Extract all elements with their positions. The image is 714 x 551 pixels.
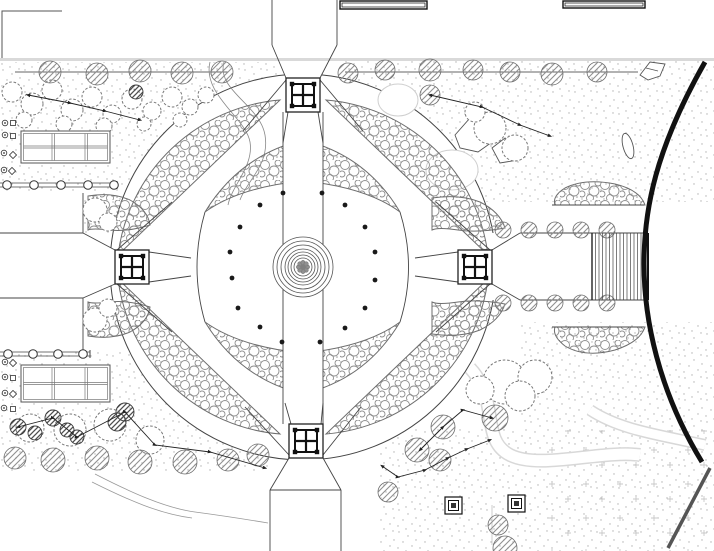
tree-symbol — [39, 61, 61, 83]
tree-symbol — [419, 59, 441, 81]
square-symbol — [11, 376, 16, 381]
plaza-planting-dot — [228, 250, 233, 255]
top-edge-structure — [563, 1, 645, 8]
plaza-planting-dot — [258, 203, 263, 208]
pavilion-column — [462, 276, 466, 280]
square-symbol — [11, 407, 16, 412]
shrub-bed-east-lower — [432, 301, 505, 335]
tree-symbol — [173, 450, 197, 474]
plaza-planting-dot — [373, 250, 378, 255]
pavilion-column — [119, 254, 123, 258]
top-edge-structure — [340, 1, 427, 9]
square-symbol — [11, 134, 16, 139]
pavilion-column — [293, 428, 297, 432]
tree-symbol — [521, 295, 537, 311]
fountain-layer — [273, 237, 333, 297]
pavilion-column — [119, 276, 123, 280]
tree-symbol — [495, 295, 511, 311]
tree-symbol — [375, 60, 395, 80]
tree-symbol — [429, 449, 451, 471]
plaza-planting-dot — [230, 276, 235, 281]
plaza-planting-dot — [343, 326, 348, 331]
shrub-cloud — [137, 117, 151, 131]
garden-pavilion — [286, 78, 320, 112]
tree-symbol — [599, 295, 615, 311]
tree-symbol — [86, 63, 108, 85]
tree-symbol — [217, 449, 239, 471]
plaza-planting-dot — [280, 340, 285, 345]
colonnade-post — [79, 350, 88, 359]
tree-symbol — [171, 62, 193, 84]
tree-symbol — [128, 450, 152, 474]
shrub-cloud — [173, 113, 187, 127]
shrub-cloud — [99, 213, 117, 231]
plaza-planting-dot — [281, 191, 286, 196]
site-plan-drawing — [0, 0, 714, 551]
tree-symbol — [495, 222, 511, 238]
pavilion-column — [462, 254, 466, 258]
shrub-cloud — [82, 87, 102, 107]
landscape-plan-canvas — [0, 0, 714, 551]
pavilion-column — [312, 104, 316, 108]
shrub-cloud — [198, 87, 214, 103]
tree-symbol — [599, 222, 615, 238]
shrub-cloud — [56, 116, 72, 132]
tree-symbol — [547, 295, 563, 311]
pavilion-column — [484, 276, 488, 280]
tree-symbol — [488, 515, 508, 535]
tree-symbol — [547, 222, 563, 238]
tree-symbol — [482, 405, 508, 431]
shrub-cloud — [466, 376, 494, 404]
dark-tree-symbol — [129, 85, 143, 99]
square-planter — [508, 495, 525, 512]
plaza-planting-dot — [236, 306, 241, 311]
plaza-planting-dot — [258, 325, 263, 330]
plaza-planting-dot — [238, 225, 243, 230]
tree-symbol — [211, 61, 233, 83]
site-wall-band — [0, 58, 714, 61]
tree-symbol — [405, 438, 429, 462]
plaza-planting-dot — [363, 306, 368, 311]
square-symbol — [11, 121, 16, 126]
tree-symbol — [4, 447, 26, 469]
colonnade-post — [54, 350, 63, 359]
shrub-cloud — [16, 112, 32, 128]
east-promenade-surface — [492, 233, 648, 300]
garden-pavilion — [458, 250, 492, 284]
plaza-planting-dot — [363, 225, 368, 230]
plaza-planting-dot — [320, 191, 325, 196]
west-corridor-surface — [0, 233, 83, 298]
pergola-structure — [21, 131, 110, 163]
colonnade-post — [110, 181, 119, 190]
tree-symbol — [247, 444, 269, 466]
tree-symbol — [500, 62, 520, 82]
garden-pavilion — [289, 424, 323, 458]
pavilion-column — [293, 450, 297, 454]
pavilion-column — [290, 104, 294, 108]
tree-symbol — [463, 60, 483, 80]
shrub-cloud — [182, 99, 198, 115]
colonnade-post — [4, 350, 13, 359]
top-structures-layer — [340, 1, 645, 9]
south-path-surface — [270, 490, 341, 551]
tree-symbol — [378, 482, 398, 502]
pergola-structure — [21, 365, 110, 402]
plaza-planting-dot — [318, 340, 323, 345]
plaza-planting-dot — [343, 203, 348, 208]
colonnade-post — [84, 181, 93, 190]
shrub-cloud — [99, 299, 117, 317]
colonnade-post — [29, 350, 38, 359]
tree-symbol — [587, 62, 607, 82]
shrub-cloud — [502, 135, 528, 161]
pavilion-column — [141, 276, 145, 280]
tree-symbol — [41, 448, 65, 472]
pavilion-column — [141, 254, 145, 258]
colonnade-post — [3, 181, 12, 190]
tree-symbol — [85, 446, 109, 470]
tree-symbol — [573, 295, 589, 311]
tree-symbol — [573, 222, 589, 238]
pavilion-column — [315, 428, 319, 432]
pavilion-column — [484, 254, 488, 258]
tree-symbol — [541, 63, 563, 85]
tree-symbol — [129, 60, 151, 82]
building-outline-northwest — [2, 11, 62, 58]
pavilion-column — [312, 82, 316, 86]
tree-symbol — [521, 222, 537, 238]
pavilion-column — [290, 82, 294, 86]
tree-symbol — [338, 63, 358, 83]
colonnade-post — [57, 181, 66, 190]
dark-tree-symbol — [28, 426, 42, 440]
square-planter — [445, 497, 462, 514]
plaza-planting-dot — [373, 278, 378, 283]
colonnade-post — [30, 181, 39, 190]
pavilion-column — [315, 450, 319, 454]
north-path-surface — [272, 0, 337, 46]
shrub-cloud — [2, 82, 22, 102]
shrub-cloud — [505, 381, 535, 411]
garden-pavilion — [115, 250, 149, 284]
shrub-cloud — [162, 87, 182, 107]
